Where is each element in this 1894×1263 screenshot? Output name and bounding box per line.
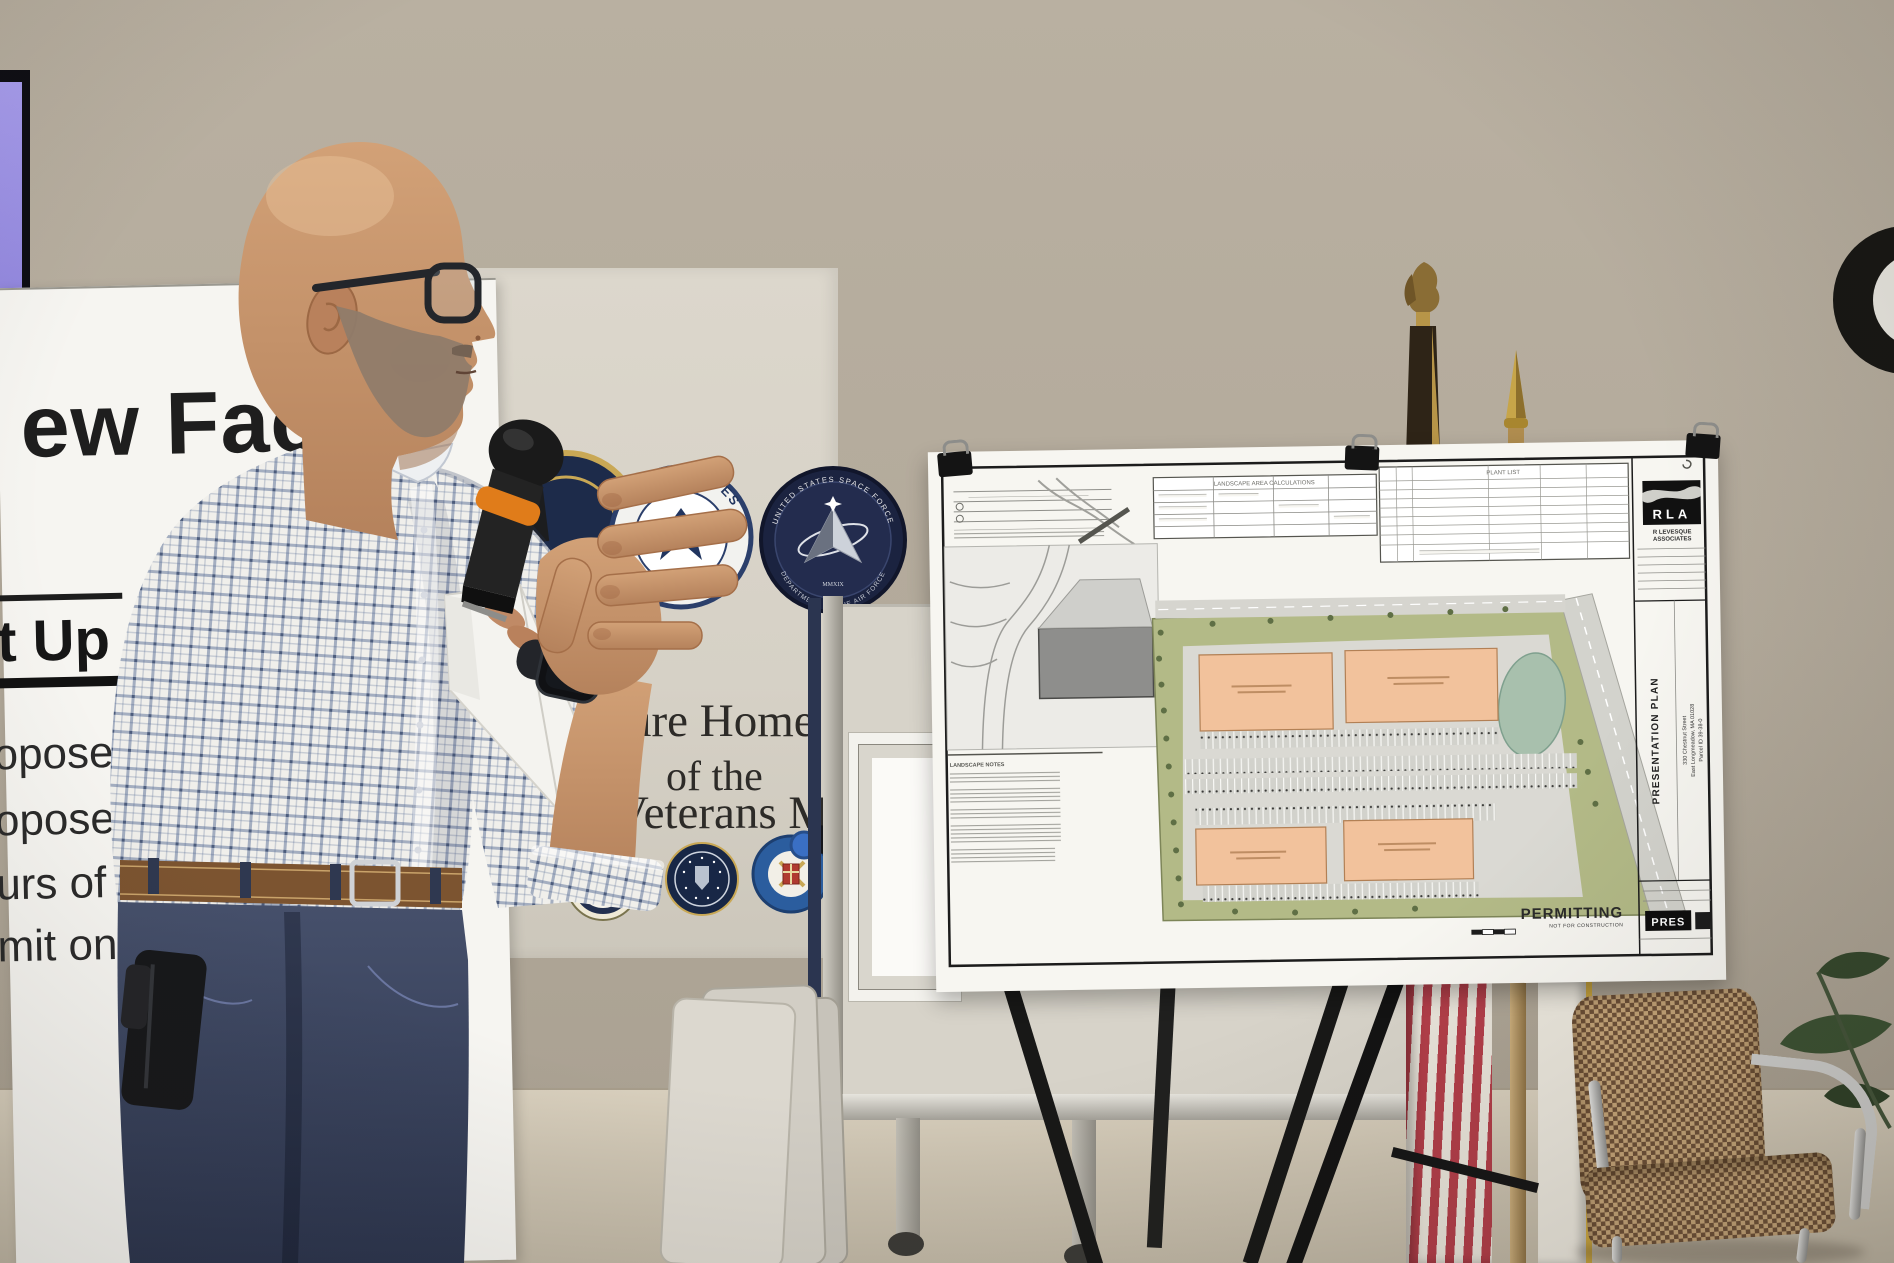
presenter: 7 [0, 0, 1894, 1263]
scalp-highlight [266, 156, 394, 236]
meeting-room-photo: UNITED STATES UNITED STATES SPACE FORCE … [0, 0, 1894, 1263]
